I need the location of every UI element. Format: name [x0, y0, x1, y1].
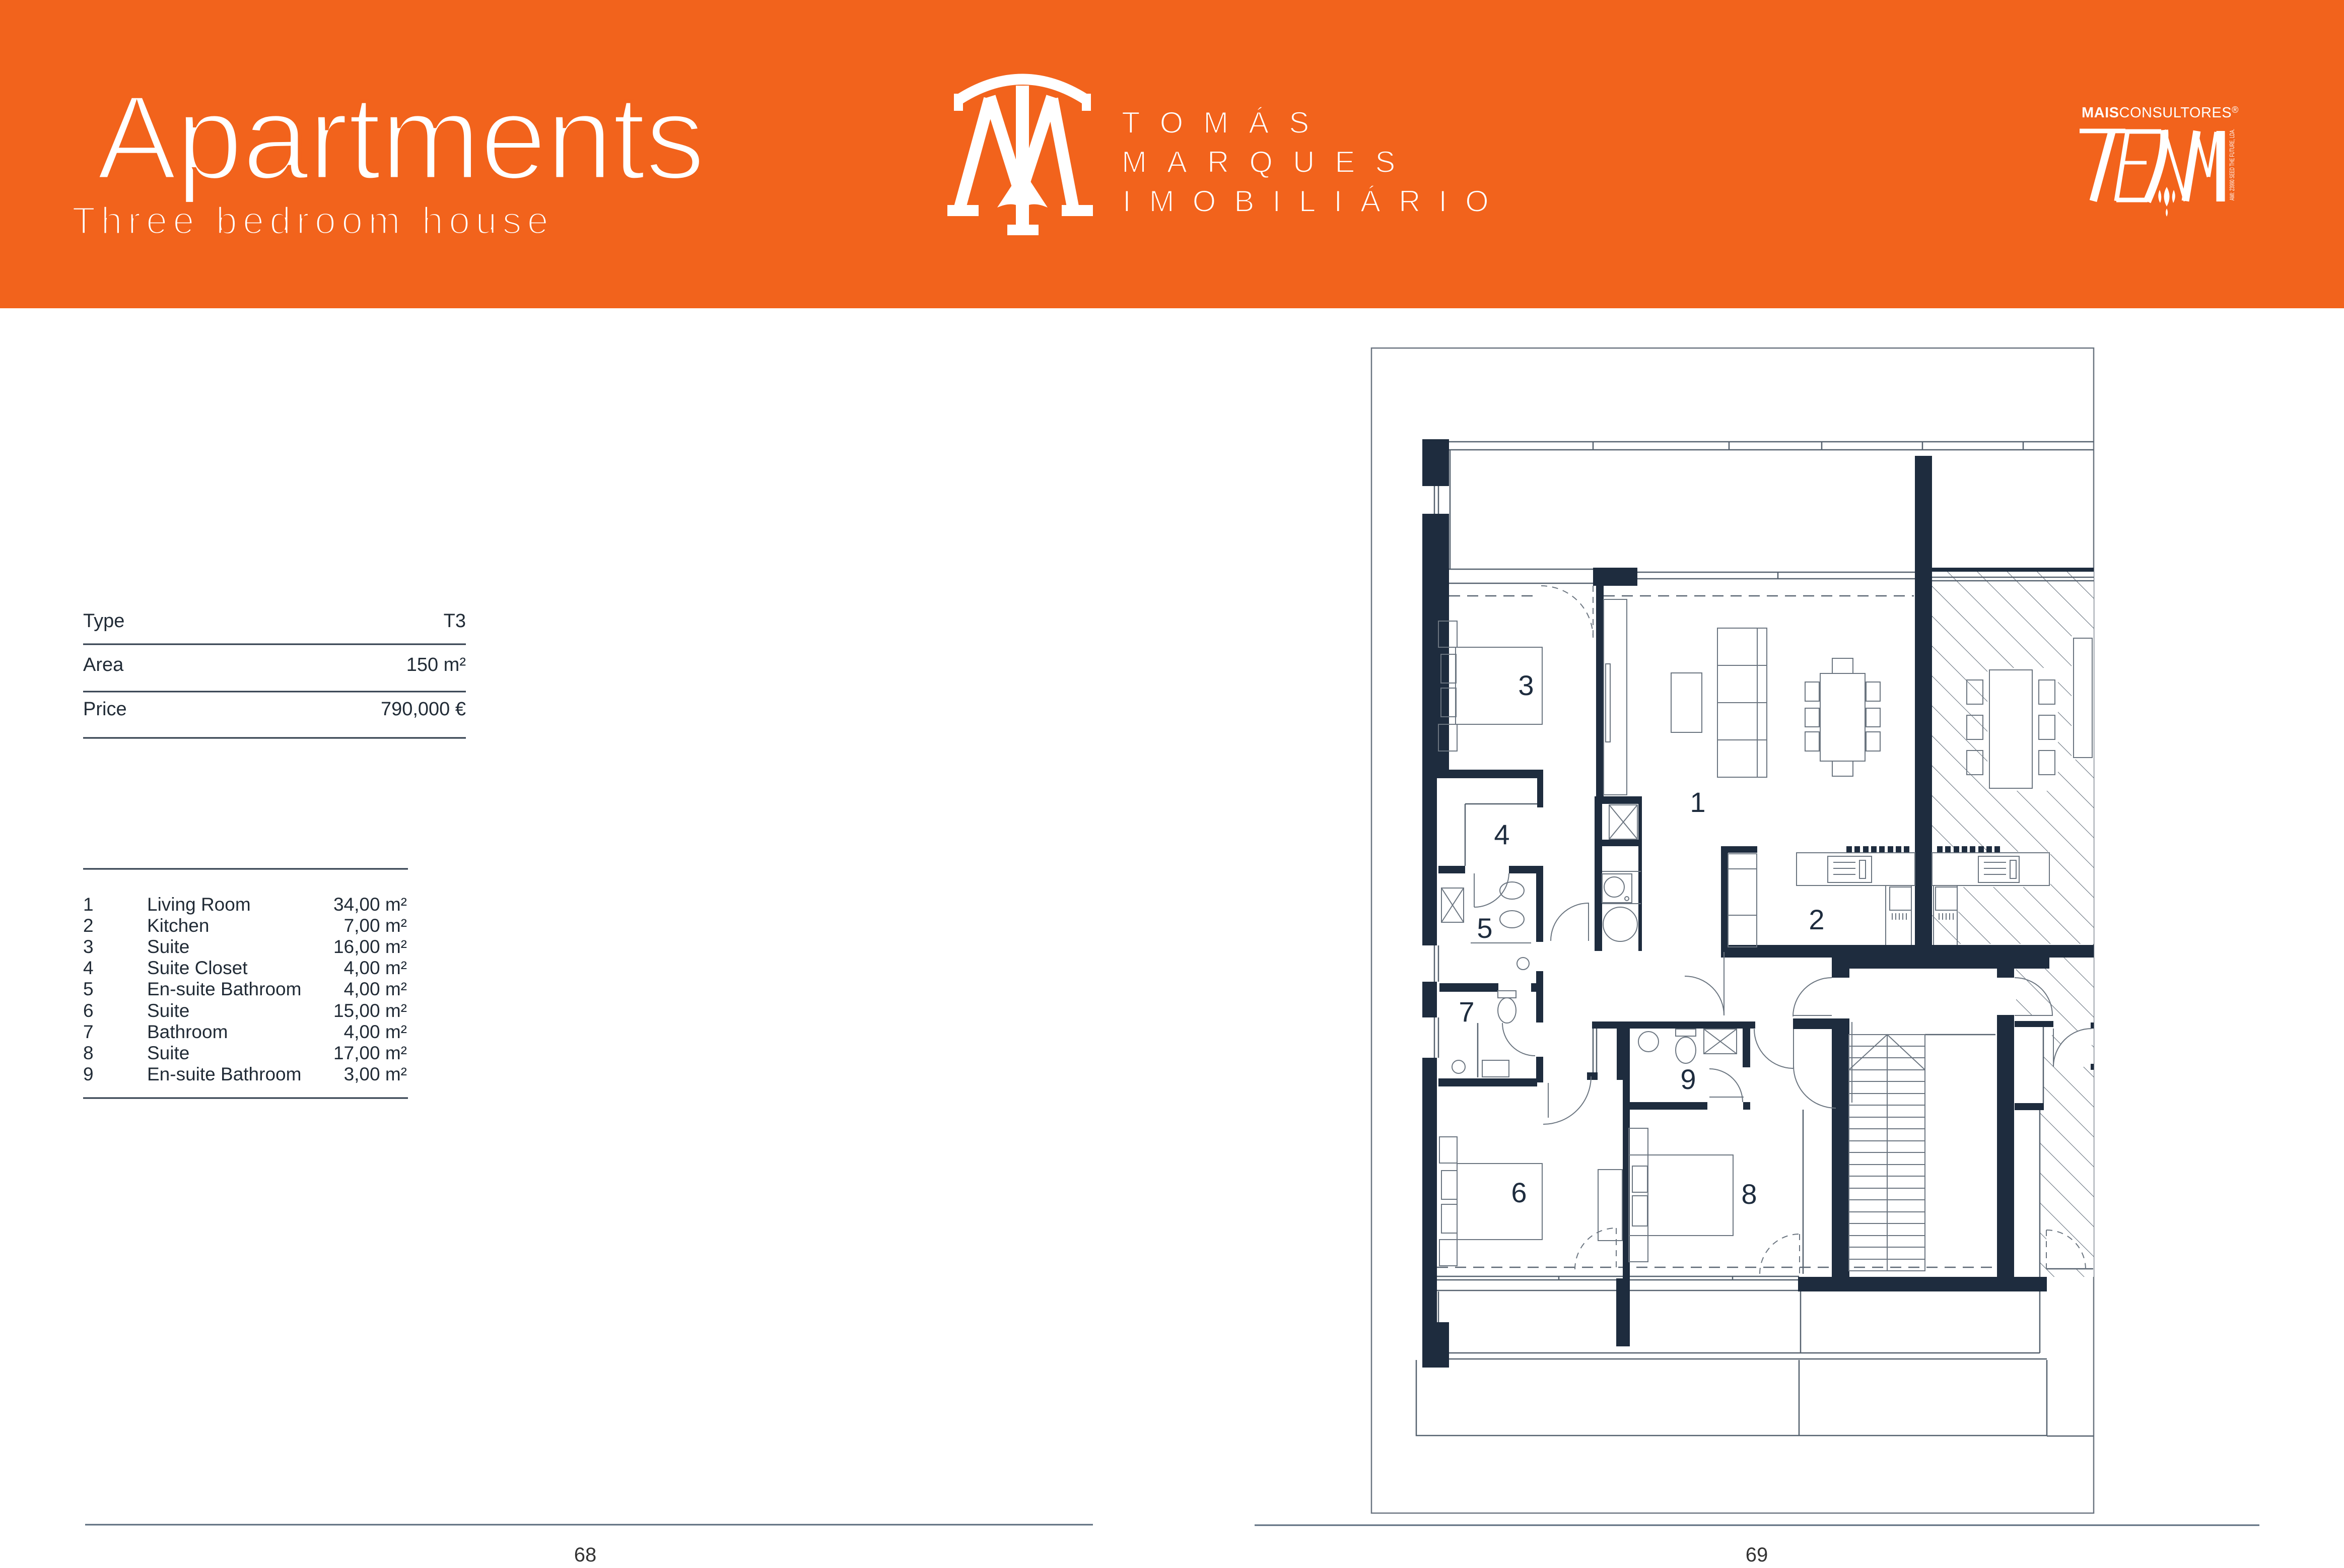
svg-text:4,00 m²: 4,00 m² [344, 958, 407, 978]
svg-text:MARQUES: MARQUES [1122, 145, 1415, 179]
svg-text:6: 6 [1511, 1177, 1527, 1208]
svg-text:En-suite Bathroom: En-suite Bathroom [147, 979, 301, 999]
svg-text:Three bedroom house: Three bedroom house [72, 199, 554, 242]
svg-text:Type: Type [83, 610, 124, 632]
svg-text:Kitchen: Kitchen [147, 915, 209, 936]
svg-text:4: 4 [83, 958, 94, 978]
svg-text:16,00 m²: 16,00 m² [333, 936, 407, 957]
svg-text:5: 5 [83, 979, 94, 999]
svg-text:4: 4 [1494, 819, 1509, 850]
svg-text:4,00 m²: 4,00 m² [344, 1021, 407, 1042]
svg-text:Suite: Suite [147, 1000, 189, 1021]
svg-text:5: 5 [1477, 912, 1492, 944]
svg-text:17,00 m²: 17,00 m² [333, 1043, 407, 1063]
svg-text:3: 3 [1518, 669, 1534, 701]
svg-text:TOMÁS: TOMÁS [1122, 106, 1329, 140]
svg-text:6: 6 [83, 1000, 94, 1021]
svg-text:790,000 €: 790,000 € [381, 699, 466, 720]
svg-text:68: 68 [574, 1544, 597, 1566]
svg-text:1: 1 [1690, 786, 1705, 818]
svg-text:8: 8 [83, 1043, 94, 1063]
svg-text:34,00 m²: 34,00 m² [333, 894, 407, 915]
svg-text:7: 7 [83, 1021, 94, 1042]
svg-text:150 m²: 150 m² [406, 654, 466, 675]
svg-text:MAISCONSULTORES®: MAISCONSULTORES® [2082, 105, 2239, 121]
svg-text:8: 8 [1741, 1178, 1757, 1210]
svg-text:AMI: 23990 SEED THE FUTURE, L: AMI: 23990 SEED THE FUTURE, LDA. [2228, 129, 2236, 200]
svg-text:Living Room: Living Room [147, 894, 251, 915]
svg-text:3,00 m²: 3,00 m² [344, 1064, 407, 1084]
svg-text:2: 2 [1809, 904, 1824, 935]
svg-text:9: 9 [1680, 1063, 1696, 1095]
svg-text:Area: Area [83, 654, 124, 675]
svg-text:7,00 m²: 7,00 m² [344, 915, 407, 936]
svg-text:T3: T3 [444, 610, 466, 632]
svg-text:3: 3 [83, 936, 94, 957]
svg-text:Price: Price [83, 699, 127, 720]
svg-text:15,00 m²: 15,00 m² [333, 1000, 407, 1021]
svg-text:Suite: Suite [147, 936, 189, 957]
svg-text:En-suite Bathroom: En-suite Bathroom [147, 1064, 301, 1084]
svg-text:Suite: Suite [147, 1043, 189, 1063]
svg-text:1: 1 [83, 894, 94, 915]
svg-text:Suite Closet: Suite Closet [147, 958, 248, 978]
svg-text:69: 69 [1746, 1544, 1768, 1566]
svg-text:Apartments: Apartments [97, 71, 705, 204]
svg-text:9: 9 [83, 1064, 94, 1084]
svg-text:4,00 m²: 4,00 m² [344, 979, 407, 999]
svg-text:IMOBILIÁRIO: IMOBILIÁRIO [1123, 184, 1507, 218]
svg-text:7: 7 [1459, 996, 1474, 1028]
svg-text:Bathroom: Bathroom [147, 1021, 228, 1042]
svg-text:2: 2 [83, 915, 94, 936]
